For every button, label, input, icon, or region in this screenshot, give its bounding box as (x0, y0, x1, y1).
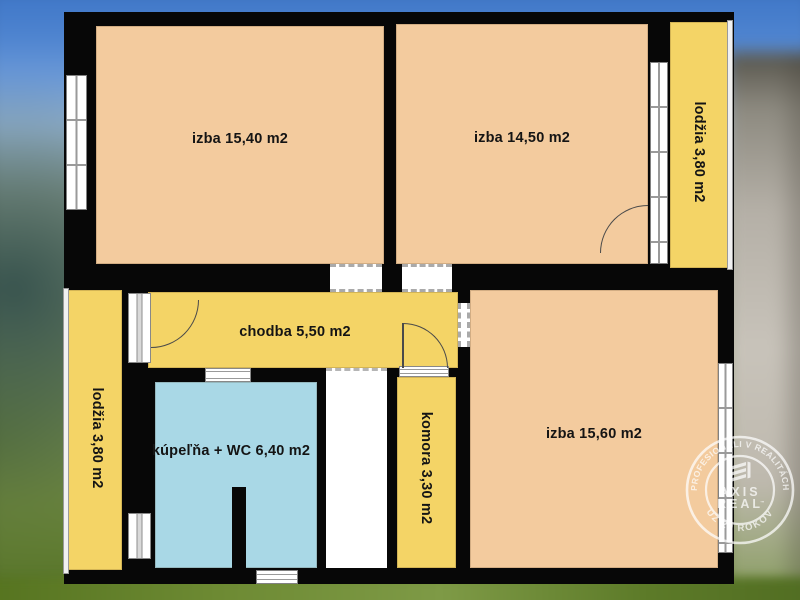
door-threshold-bathroom (205, 368, 251, 382)
loggia-right-railing (727, 20, 733, 270)
room-label-izba-1450: izba 14,50 m2 (474, 130, 570, 146)
room-label-chodba: chodba 5,50 m2 (239, 324, 351, 340)
room-label-lodzia-left: lodžia 3,80 m2 (89, 387, 105, 488)
room-label-izba-1540: izba 15,40 m2 (192, 131, 288, 147)
wc-partition-wall (232, 487, 246, 568)
axis-real-logo-icon (729, 462, 751, 483)
loggia-left-railing (63, 288, 69, 574)
window-wc-bottom (256, 570, 298, 584)
floorplan-screenshot: izba 15,40 m2 izba 14,50 m2 lodžia 3,80 … (0, 0, 800, 600)
door-chodba-to-loggia-left (128, 293, 151, 363)
room-vestibule (326, 368, 387, 568)
stamp-arc-bottom-text: UŽ 20 ROKOV (704, 507, 776, 534)
balcony-door-window-izba-1450 (650, 62, 668, 264)
room-label-lodzia-right: lodžia 3,80 m2 (691, 101, 707, 202)
window-bathroom-to-loggia (128, 513, 151, 559)
stamp-brand-real: REAL (717, 497, 763, 511)
window-izba-1540-left (66, 75, 87, 210)
passage-chodba-to-izba-1450 (402, 264, 452, 292)
passage-chodba-to-izba-1560 (458, 303, 470, 347)
room-label-komora: komora 3,30 m2 (418, 412, 434, 524)
watermark-stamp: PROFESIONÁLI V REALITÁCH UŽ 20 ROKOV AXI… (684, 434, 796, 546)
room-label-izba-1560: izba 15,60 m2 (546, 426, 642, 442)
svg-text:UŽ 20 ROKOV: UŽ 20 ROKOV (704, 507, 776, 534)
stamp-trademark: ™ (760, 500, 765, 505)
passage-chodba-to-izba-1540 (330, 264, 382, 292)
room-label-kupelna-wc: kúpeľňa + WC 6,40 m2 (152, 443, 310, 459)
